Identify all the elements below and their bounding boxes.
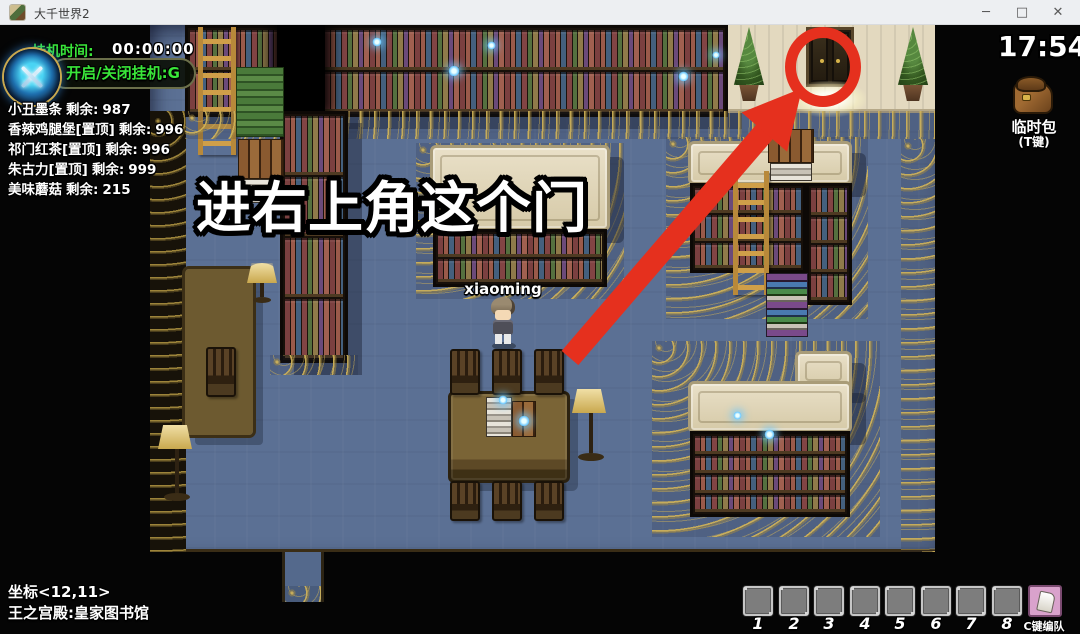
scroll-glyph [1036,591,1056,614]
hotbar-number: 4 [850,614,880,633]
book-row [811,188,847,215]
book-row [811,245,847,272]
chair [534,349,564,395]
sparkle-icon [764,429,775,440]
supply-row: 朱古力[置顶]剩余:999 [8,158,187,178]
idle-toggle-button[interactable]: 开启/关闭挂机:G [50,58,196,89]
player-body [493,320,513,335]
sparkle-icon [678,71,689,82]
sparkle-icon [518,415,530,427]
chair [534,481,564,521]
book-stack [770,163,812,181]
sparkle-icon [448,65,460,77]
chair [492,349,522,395]
instruction-text: 进右上角这个门 [196,163,636,243]
hotbar-number: 1 [743,614,773,633]
bottom-exit-passage[interactable] [282,552,324,602]
red-circle-annotation [785,27,861,107]
hotbar-slot-5[interactable] [885,586,915,616]
hotbar-slot-3[interactable] [814,586,844,616]
coordinates-text: 坐标<12,11> [8,581,111,602]
sparkle-icon [733,411,742,420]
sparkle-icon [498,395,508,405]
temp-bag-icon[interactable] [1010,74,1056,116]
supply-row: 美味蘑菇剩余:215 [8,178,187,198]
hotbar-number: 2 [779,614,809,633]
hotbar-slot-4[interactable] [850,586,880,616]
supply-row: 小丑墨条剩余:987 [8,98,187,118]
app-icon [10,5,25,20]
chair [206,347,236,397]
bookshelf-island-top [688,381,852,433]
player-character [484,297,522,349]
book-row [695,495,845,513]
book-row [190,30,723,70]
bag-buckle [1022,94,1031,101]
book-row [695,456,845,474]
maximize-button[interactable]: □ [1004,0,1040,25]
idle-time-value: 00:00:00 [112,40,195,58]
hotbar-slot-7[interactable] [956,586,986,616]
game-viewport[interactable]: xiaoming 进右上角这个门 挂机时间: 00:00:00 开启/关闭挂机:… [0,25,1080,634]
sparkle-icon [487,41,496,50]
hotbar-slot-6[interactable] [921,586,951,616]
chair [450,481,480,521]
book-row [811,217,847,244]
supply-row: 祁门红茶[置顶]剩余:996 [8,138,187,158]
player-name-label: xiaoming [440,280,566,298]
location-text: 王之宫殿:皇家图书馆 [8,602,149,623]
player-face [495,310,511,320]
player-leg [504,334,511,344]
hotbar-number: 6 [921,614,951,633]
chair [492,481,522,521]
floor-lamp [572,389,610,469]
player-leg [495,334,502,344]
carpet-trim-right [901,139,935,552]
hotbar-number: 5 [885,614,915,633]
book-row [695,475,845,493]
hotbar-number: 7 [956,614,986,633]
tree-foliage [731,27,767,85]
bookshelf-island-side [806,183,852,305]
book-row [438,259,602,282]
bag-flap [1016,76,1046,92]
hotbar-slot-8[interactable] [992,586,1022,616]
hotbar-slot-2[interactable] [779,586,809,616]
window-titlebar: 大千世界2 ─ □ ✕ [0,0,1080,25]
close-button[interactable]: ✕ [1040,0,1076,25]
window-title: 大千世界2 [34,5,90,22]
supply-row: 香辣鸡腿堡[置顶]剩余:996 [8,118,187,138]
sparkle-icon [372,37,382,47]
dark-alcove [277,25,325,111]
book-row [811,274,847,301]
sparkle-icon [712,51,720,59]
game-clock: 17:54 [998,30,1078,63]
desk-lamp [244,263,280,313]
floor-book-stacks [766,273,808,337]
chair [450,349,480,395]
team-scroll-icon[interactable] [1028,585,1062,617]
floor-lamp [158,425,196,509]
team-hotkey-label: C键编队 [1004,618,1080,634]
bookshelf-island [690,431,850,517]
hotbar-slot-1[interactable] [743,586,773,616]
supply-counter-list: 小丑墨条剩余:987 香辣鸡腿堡[置顶]剩余:996 祁门红茶[置顶]剩余:99… [8,98,187,198]
shelf-base-trim [270,355,358,375]
exit-trim [285,586,321,602]
ladder [733,171,769,295]
topiary-tree [895,27,931,101]
book-row [285,299,343,358]
idle-toggle-badge-icon[interactable] [4,49,60,105]
hotbar-number: 3 [814,614,844,633]
green-book-stack [236,67,284,137]
tree-foliage [895,27,931,85]
book-row [285,238,343,297]
tree-pot [902,85,924,101]
minimize-button[interactable]: ─ [968,0,1004,25]
temp-bag-hotkey: (T键) [996,133,1072,150]
